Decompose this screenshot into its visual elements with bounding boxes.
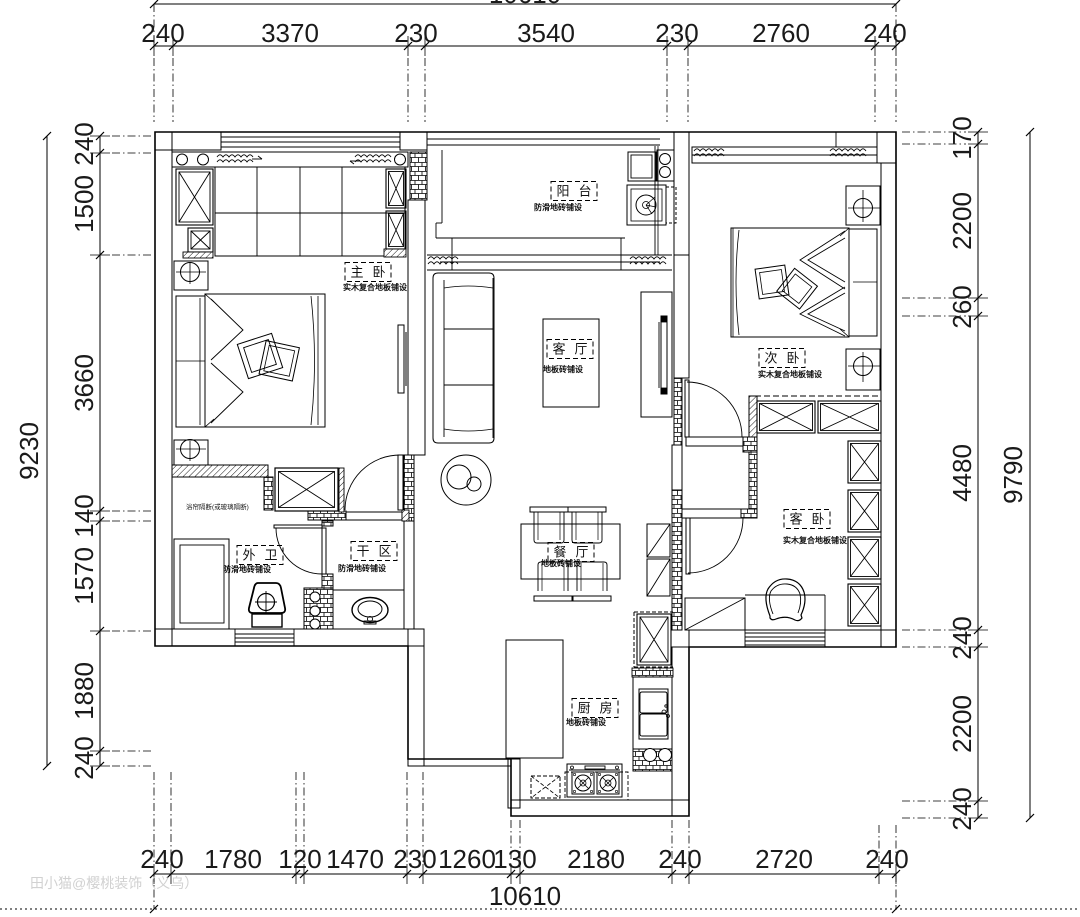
svg-text:130: 130 xyxy=(493,844,536,874)
svg-text:2200: 2200 xyxy=(947,695,977,753)
svg-text:实木复合地板铺设: 实木复合地板铺设 xyxy=(758,369,822,379)
svg-text:240: 240 xyxy=(141,18,184,48)
svg-text:9790: 9790 xyxy=(998,446,1028,504)
svg-text:240: 240 xyxy=(69,736,99,779)
svg-text:2720: 2720 xyxy=(755,844,813,874)
svg-text:240: 240 xyxy=(658,844,701,874)
svg-text:厨房: 厨房 xyxy=(577,701,621,716)
svg-text:客卧: 客卧 xyxy=(789,512,833,527)
svg-text:140: 140 xyxy=(69,494,99,537)
svg-text:2180: 2180 xyxy=(567,844,625,874)
svg-text:10610: 10610 xyxy=(489,0,561,9)
svg-text:1500: 1500 xyxy=(69,175,99,233)
svg-text:230: 230 xyxy=(394,18,437,48)
svg-text:餐厅: 餐厅 xyxy=(553,545,597,560)
svg-text:3660: 3660 xyxy=(69,354,99,412)
svg-text:3370: 3370 xyxy=(261,18,319,48)
svg-text:170: 170 xyxy=(947,116,977,159)
svg-text:干区: 干区 xyxy=(356,544,400,559)
svg-text:4480: 4480 xyxy=(947,444,977,502)
svg-text:240: 240 xyxy=(140,844,183,874)
svg-text:2760: 2760 xyxy=(752,18,810,48)
svg-text:3540: 3540 xyxy=(517,18,575,48)
svg-text:240: 240 xyxy=(947,787,977,830)
svg-text:地板砖铺设: 地板砖铺设 xyxy=(543,364,583,374)
svg-text:260: 260 xyxy=(947,285,977,328)
svg-text:240: 240 xyxy=(865,844,908,874)
svg-text:防滑地砖铺设: 防滑地砖铺设 xyxy=(223,564,271,574)
svg-text:240: 240 xyxy=(863,18,906,48)
svg-text:120: 120 xyxy=(278,844,321,874)
svg-text:地板砖铺设: 地板砖铺设 xyxy=(566,717,606,727)
svg-text:9230: 9230 xyxy=(14,422,44,480)
svg-text:230: 230 xyxy=(393,844,436,874)
svg-text:230: 230 xyxy=(655,18,698,48)
svg-text:浴帘隔断(或玻璃隔断): 浴帘隔断(或玻璃隔断) xyxy=(186,502,249,511)
svg-text:地板砖铺设: 地板砖铺设 xyxy=(541,558,581,568)
svg-text:实木复合地板铺设: 实木复合地板铺设 xyxy=(343,282,407,292)
svg-text:1260: 1260 xyxy=(438,844,496,874)
svg-text:1780: 1780 xyxy=(204,844,262,874)
svg-text:客厅: 客厅 xyxy=(552,342,596,357)
svg-text:实木复合地板铺设: 实木复合地板铺设 xyxy=(783,535,847,545)
svg-text:防滑地砖铺设: 防滑地砖铺设 xyxy=(338,563,386,573)
svg-text:次卧: 次卧 xyxy=(764,351,808,366)
svg-text:防滑地砖铺设: 防滑地砖铺设 xyxy=(534,202,582,212)
svg-text:主卧: 主卧 xyxy=(350,265,394,280)
svg-text:1570: 1570 xyxy=(69,547,99,605)
svg-text:2200: 2200 xyxy=(947,192,977,250)
svg-text:1880: 1880 xyxy=(69,662,99,720)
svg-text:阳台: 阳台 xyxy=(556,184,600,199)
svg-text:240: 240 xyxy=(947,616,977,659)
svg-text:1470: 1470 xyxy=(326,844,384,874)
svg-text:田小猫@樱桃装饰（义乌）: 田小猫@樱桃装饰（义乌） xyxy=(30,875,198,891)
svg-text:外卫: 外卫 xyxy=(242,548,286,563)
svg-text:10610: 10610 xyxy=(489,881,561,911)
svg-text:240: 240 xyxy=(69,122,99,165)
